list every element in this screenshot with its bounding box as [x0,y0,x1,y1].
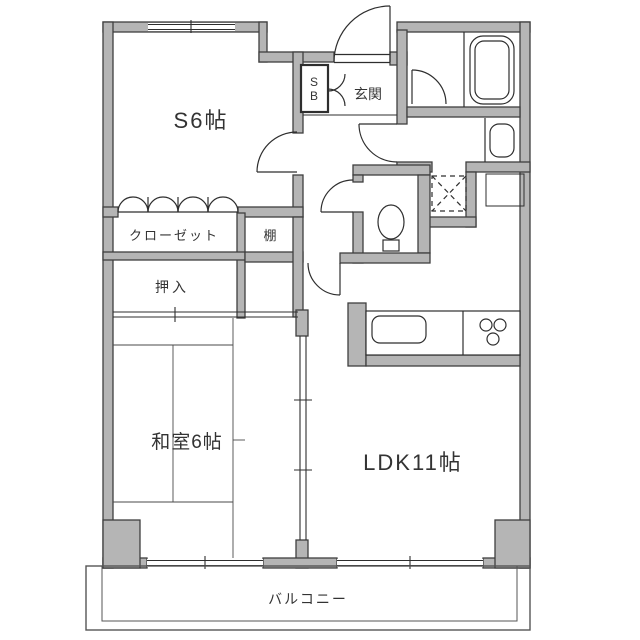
shoe-box-door-icons [328,74,345,106]
kitchen-sink-icon [372,316,426,343]
wall [103,207,118,217]
wall [353,175,363,182]
label-service-room: S6帖 [174,108,229,133]
washing-machine-space-icon [432,176,466,211]
wall [418,175,430,253]
wall [397,30,407,124]
wall [397,22,530,32]
label-futon-closet: 押入 [155,279,189,295]
label-closet: クローゼット [129,228,219,243]
entrance-door-swing-icon [334,6,390,63]
room-divider-sliding [294,336,312,540]
toilet-icon [378,205,404,251]
wall [425,217,476,227]
floorplan-svg: S6帖 玄関 S B クローゼット 棚 押入 和室6帖 LDK11帖 バルコニー [0,0,640,640]
wall [103,252,245,260]
wall [296,310,308,336]
toilet-door-swing-icon [321,180,353,212]
label-shelf: 棚 [263,228,276,243]
wall [340,253,430,263]
window-japanese-room [147,556,263,569]
label-shoe-box-s: S [310,75,318,89]
kitchen-half-wall [366,355,520,366]
label-entrance: 玄関 [354,86,382,102]
s6-door-swing-icon [257,132,297,172]
pillar [495,520,530,568]
label-japanese-room: 和室6帖 [151,431,223,453]
wall [293,217,303,317]
kitchen-counter [366,311,520,355]
bathroom-door-swing-icon [412,70,446,104]
wall [238,207,303,217]
vanity-sink-icon [485,118,514,162]
label-ldk: LDK11帖 [363,450,463,475]
floorplan-page: S6帖 玄関 S B クローゼット 棚 押入 和室6帖 LDK11帖 バルコニー [0,0,640,640]
wall [466,162,530,172]
fusuma-line [113,307,298,322]
bathtub-icon [464,32,514,107]
washroom-door-swing-icon [359,124,397,162]
label-shoe-box-b: B [310,89,318,103]
wall [353,165,430,175]
window-ldk [337,556,483,569]
label-balcony: バルコニー [268,591,348,607]
wall [520,22,530,568]
wall [348,303,366,366]
folding-doors-icon [118,197,238,212]
wall [103,22,113,568]
wall [407,107,520,117]
pillar [103,520,140,568]
ldk-door-swing-icon [308,263,340,295]
wall [237,213,245,318]
storage-niche [486,174,524,206]
